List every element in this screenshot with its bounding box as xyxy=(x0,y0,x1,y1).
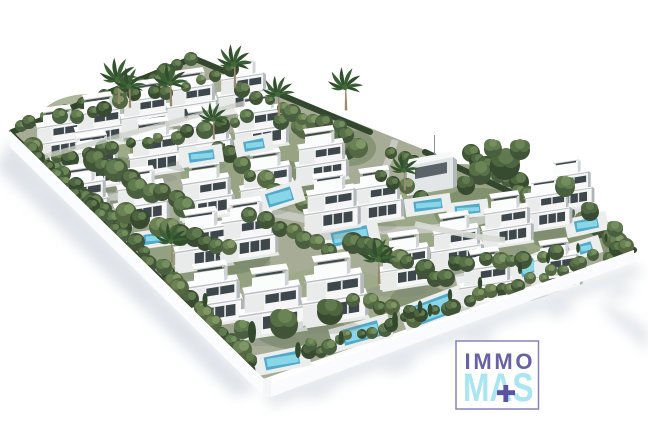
svg-text:MAS: MAS xyxy=(463,366,534,410)
